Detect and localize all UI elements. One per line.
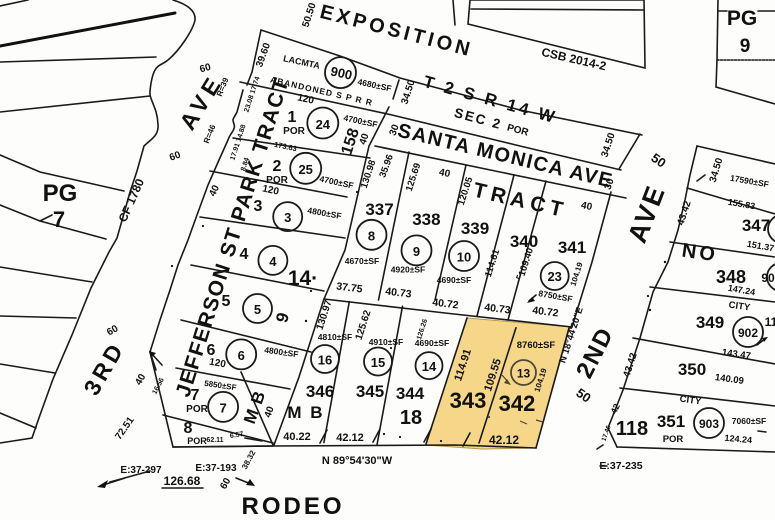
svg-text:4910±SF: 4910±SF	[369, 337, 403, 347]
svg-text:5: 5	[254, 302, 261, 317]
svg-text:338: 338	[412, 210, 440, 229]
svg-text:4690±SF: 4690±SF	[437, 275, 471, 285]
svg-text:14: 14	[422, 359, 437, 374]
svg-text:3: 3	[254, 198, 263, 215]
svg-text:3: 3	[284, 210, 291, 225]
svg-text:7: 7	[191, 387, 200, 404]
svg-text:340: 340	[510, 232, 538, 251]
svg-text:351: 351	[657, 412, 685, 431]
svg-text:7: 7	[219, 401, 226, 416]
svg-text:24: 24	[316, 117, 331, 132]
svg-text:RODEO: RODEO	[241, 493, 344, 520]
svg-text:POR: POR	[186, 404, 208, 415]
svg-text:N 89°54'30"W: N 89°54'30"W	[322, 455, 393, 467]
svg-text:62.11: 62.11	[206, 437, 223, 444]
svg-text:6: 6	[238, 348, 245, 363]
svg-text:8: 8	[368, 229, 375, 244]
svg-text:10: 10	[457, 250, 471, 265]
svg-text:POR: POR	[663, 434, 684, 445]
svg-text:339: 339	[461, 219, 489, 238]
svg-text:118: 118	[616, 418, 648, 440]
svg-text:11: 11	[765, 315, 775, 329]
svg-text:E:37-193: E:37-193	[195, 463, 237, 474]
svg-text:25: 25	[298, 162, 312, 177]
svg-text:4: 4	[240, 246, 249, 263]
svg-text:5: 5	[222, 293, 231, 310]
svg-text:POR: POR	[283, 126, 305, 137]
svg-text:344: 344	[396, 384, 425, 403]
svg-text:90: 90	[761, 271, 775, 285]
svg-text:347: 347	[742, 216, 770, 235]
svg-text:18: 18	[400, 407, 422, 429]
svg-text:902: 902	[738, 326, 758, 340]
svg-text:341: 341	[558, 238, 586, 257]
svg-text:9: 9	[413, 244, 420, 259]
svg-text:349: 349	[696, 313, 724, 332]
svg-text:4920±SF: 4920±SF	[391, 265, 425, 275]
svg-text:4810±SF: 4810±SF	[318, 332, 352, 342]
svg-text:4: 4	[269, 254, 277, 269]
svg-text:343: 343	[450, 388, 487, 413]
svg-text:2: 2	[273, 158, 282, 175]
svg-text:7: 7	[53, 207, 65, 232]
svg-text:42.12: 42.12	[489, 433, 519, 447]
svg-text:POR: POR	[187, 436, 207, 446]
svg-text:PG: PG	[43, 180, 78, 207]
svg-text:PG: PG	[727, 7, 757, 30]
svg-text:903: 903	[699, 417, 719, 431]
svg-text:345: 345	[356, 382, 384, 401]
svg-text:7060±SF: 7060±SF	[732, 416, 766, 426]
svg-text:1: 1	[288, 109, 297, 126]
svg-text:337: 337	[365, 200, 393, 219]
svg-text:4670±SF: 4670±SF	[345, 256, 379, 266]
svg-text:342: 342	[499, 391, 536, 416]
svg-text:126.68: 126.68	[164, 474, 201, 488]
svg-text:M B: M B	[287, 403, 324, 422]
svg-text:4690±SF: 4690±SF	[415, 338, 449, 348]
svg-text:16: 16	[318, 353, 332, 368]
svg-text:E:37-297: E:37-297	[120, 465, 162, 476]
svg-text:8: 8	[184, 420, 193, 437]
svg-text:13: 13	[517, 367, 531, 381]
svg-text:23: 23	[547, 269, 561, 284]
svg-text:15: 15	[371, 355, 385, 370]
svg-text:8760±SF: 8760±SF	[517, 340, 556, 351]
svg-text:40.22: 40.22	[283, 431, 311, 443]
svg-text:14·: 14·	[288, 267, 318, 290]
svg-text:346: 346	[306, 382, 334, 401]
svg-text:9: 9	[740, 36, 751, 57]
svg-text:42.12: 42.12	[336, 432, 364, 444]
svg-text:350: 350	[678, 360, 706, 379]
